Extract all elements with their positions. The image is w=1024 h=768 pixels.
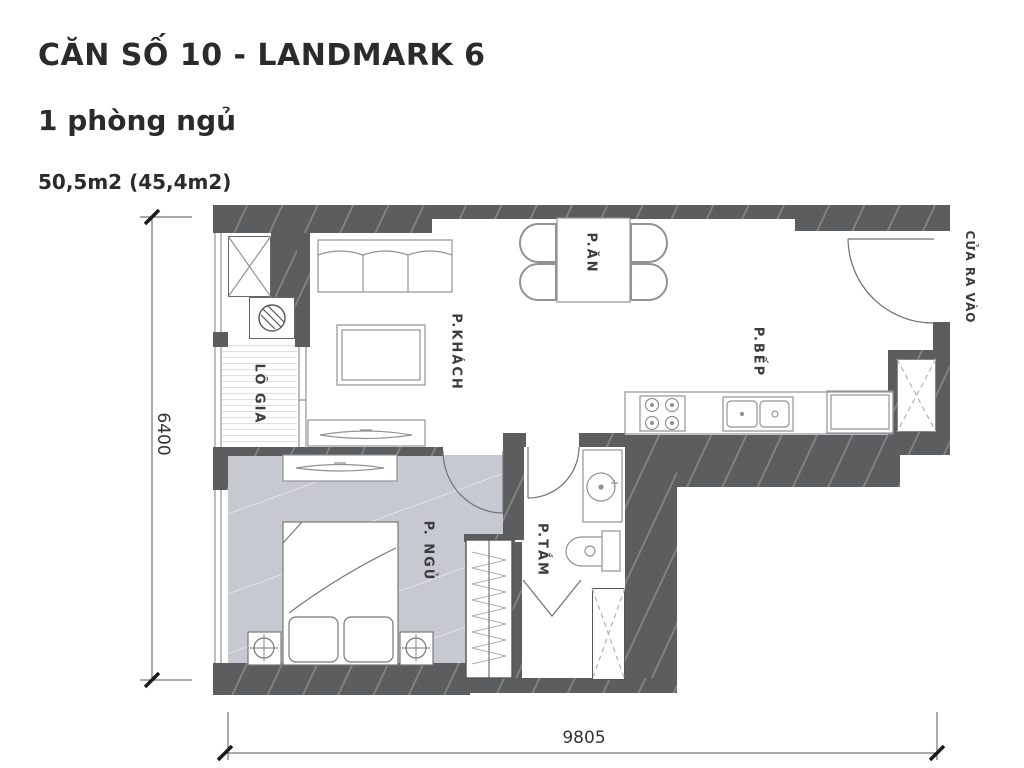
label-dining: P.ĂN: [584, 232, 599, 273]
label-bathroom: P.TẮM: [535, 523, 550, 577]
window-lines: [215, 233, 221, 663]
label-kitchen: P.BẾP: [751, 327, 766, 377]
toilet: [566, 531, 620, 571]
floorplan-page: CĂN SỐ 10 - LANDMARK 6 1 phòng ngủ 50,5m…: [0, 0, 1024, 768]
label-bedroom: P. NGỦ: [421, 521, 436, 582]
bed: [283, 522, 398, 665]
floorplan: P.KHÁCH P.ĂN P.BẾP LÔ GIA P. NGỦ P.TẮM C…: [0, 0, 1024, 768]
bathroom-door: [528, 447, 579, 498]
washing-machine-icon: [259, 305, 285, 331]
entrance-door: [848, 239, 934, 323]
kitchen-counter: [625, 391, 893, 434]
dimension-ticks: [145, 210, 944, 760]
shower-door: [523, 580, 581, 616]
dimension-horizontal: 9805: [562, 728, 605, 748]
dimension-vertical: 6400: [153, 412, 173, 455]
washbasin: [583, 450, 622, 522]
label-entrance: CỬA RA VÀO: [963, 231, 977, 324]
bedroom-door: [443, 451, 503, 513]
coffee-table: [337, 325, 425, 385]
tv-console-living: [308, 420, 425, 446]
label-living: P.KHÁCH: [449, 313, 464, 391]
loggia-sliding-door: [299, 347, 306, 449]
label-loggia: LÔ GIA: [252, 364, 267, 425]
wardrobe: [466, 540, 512, 678]
tv-console-bedroom: [283, 455, 397, 481]
plan-linework: [0, 0, 1024, 768]
sofa: [318, 240, 452, 292]
dimension-lines: [140, 210, 944, 760]
